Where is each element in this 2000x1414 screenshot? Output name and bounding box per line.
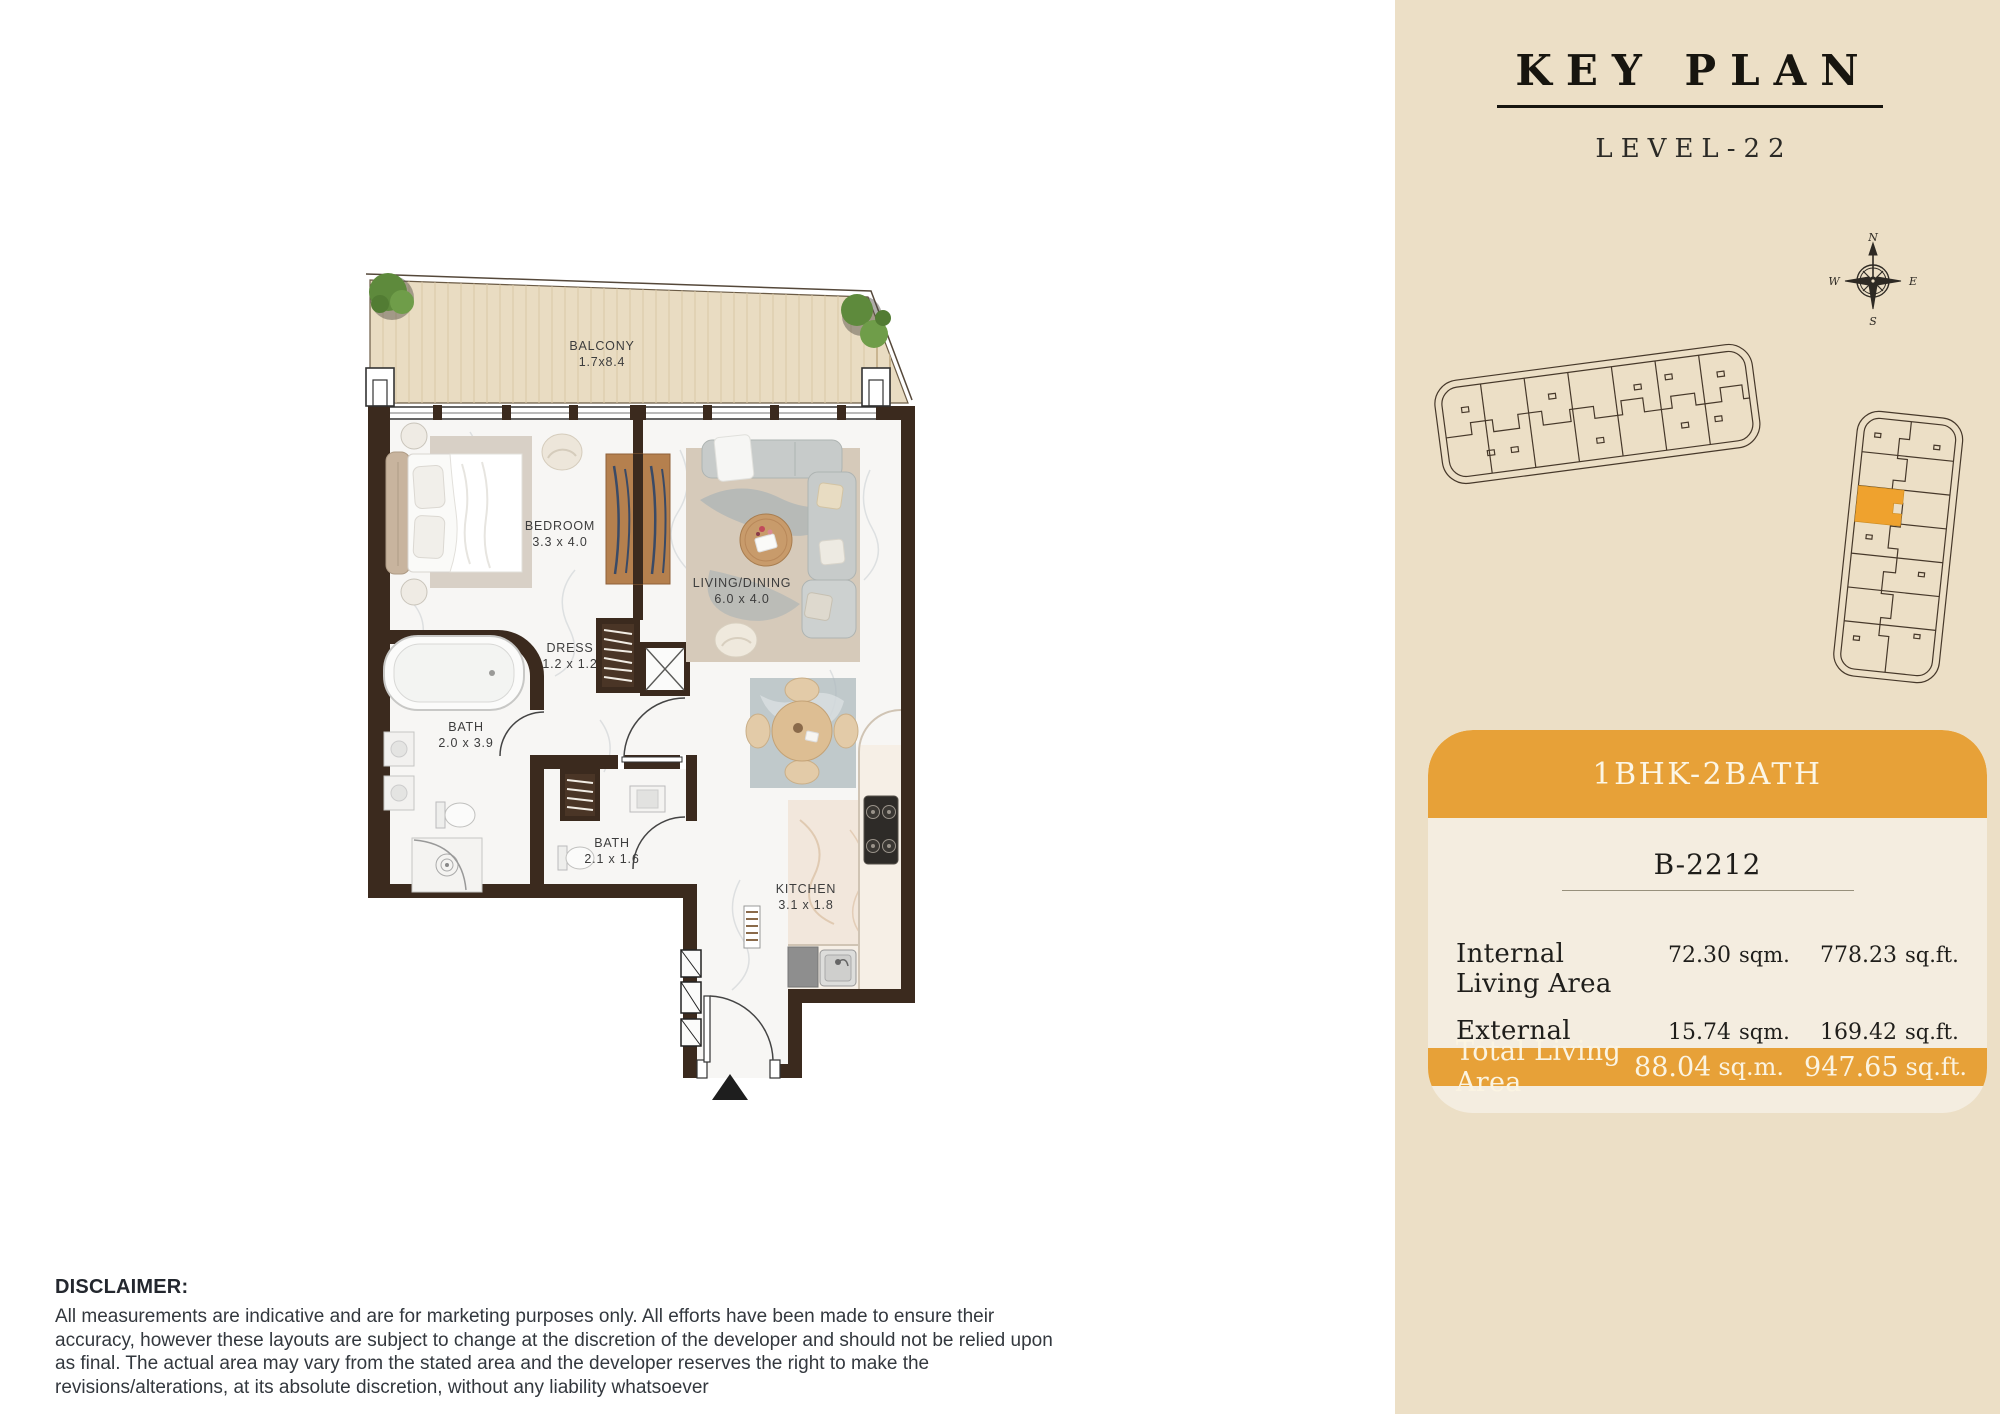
unit-type-label: 1BHK-2BATH bbox=[1593, 757, 1823, 792]
coffee-table bbox=[740, 514, 792, 566]
svg-text:6.0 x 4.0: 6.0 x 4.0 bbox=[714, 592, 769, 606]
shaft-box bbox=[643, 645, 687, 693]
keyplan-title: KEY PLAN bbox=[1395, 46, 1985, 108]
svg-text:1.2 x 1.2: 1.2 x 1.2 bbox=[542, 657, 597, 671]
area-sqft-unit: sq.ft. bbox=[1897, 943, 1961, 967]
wardrobe bbox=[606, 454, 670, 584]
dining-chair bbox=[746, 714, 770, 748]
toilet bbox=[436, 802, 475, 828]
room-label-living-dining: LIVING/DINING bbox=[693, 576, 792, 590]
area-sqm-unit: sqm. bbox=[1731, 1020, 1801, 1044]
keyplan-title-text: KEY PLAN bbox=[1497, 46, 1882, 108]
total-sqm-value: 88.04 bbox=[1634, 1052, 1711, 1083]
bathtub bbox=[384, 636, 524, 710]
compass-n-label: N bbox=[1867, 233, 1878, 244]
area-sqm-value: 72.30 bbox=[1645, 943, 1731, 968]
balcony-deck bbox=[366, 270, 912, 406]
compass-icon: N S W E bbox=[1825, 233, 1921, 329]
total-sqm-unit: sq.m. bbox=[1718, 1053, 1784, 1081]
unit-number: B-2212 bbox=[1428, 848, 1987, 881]
svg-text:1.7x8.4: 1.7x8.4 bbox=[579, 355, 626, 369]
disclaimer: DISCLAIMER: All measurements are indicat… bbox=[55, 1276, 1075, 1399]
svg-text:3.1 x 1.8: 3.1 x 1.8 bbox=[778, 898, 833, 912]
room-label-bath2: BATH bbox=[594, 836, 630, 850]
compass-w-label: W bbox=[1828, 275, 1841, 288]
svg-text:2.1 x 1.6: 2.1 x 1.6 bbox=[584, 852, 639, 866]
keyplan-header: KEY PLAN LEVEL-22 bbox=[1395, 0, 1985, 164]
side-table bbox=[401, 423, 427, 449]
area-sqft-value: 778.23 bbox=[1801, 943, 1897, 968]
room-label-balcony: BALCONY bbox=[569, 339, 634, 353]
area-row-label: Internal Living Area bbox=[1456, 939, 1645, 999]
dining-set bbox=[746, 678, 858, 788]
total-label: Total Living Area bbox=[1428, 1036, 1634, 1098]
shower bbox=[412, 838, 482, 892]
room-label-dress: DRESS bbox=[546, 641, 593, 655]
area-row-internal: Internal Living Area 72.30 sqm. 778.23 s… bbox=[1428, 939, 1987, 999]
area-sqft-unit: sq.ft. bbox=[1897, 1020, 1961, 1044]
svg-text:2.0 x 3.9: 2.0 x 3.9 bbox=[438, 736, 493, 750]
area-sqm-unit: sqm. bbox=[1731, 943, 1801, 967]
room-label-kitchen: KITCHEN bbox=[776, 882, 836, 896]
disclaimer-heading: DISCLAIMER: bbox=[55, 1276, 1075, 1299]
page: { "key_plan": { "title": "KEY PLAN", "le… bbox=[0, 0, 2000, 1414]
dining-chair bbox=[834, 714, 858, 748]
disclaimer-body: All measurements are indicative and are … bbox=[55, 1305, 1075, 1399]
bed bbox=[386, 452, 522, 574]
room-label-bedroom: BEDROOM bbox=[525, 519, 595, 533]
bedroom-armchair bbox=[542, 434, 582, 470]
living-armchair bbox=[715, 623, 757, 657]
dining-chair bbox=[785, 760, 819, 784]
keyplan-sidebar: KEY PLAN LEVEL-22 N S W E bbox=[1395, 0, 2000, 1414]
total-area-bar: Total Living Area 88.04 sq.m. 947.65 sq.… bbox=[1428, 1048, 1987, 1086]
laundry-closet bbox=[560, 769, 600, 821]
area-sqm-value: 15.74 bbox=[1645, 1020, 1731, 1045]
stove-icon bbox=[864, 796, 898, 864]
shaft-boxes bbox=[681, 950, 701, 1046]
bath2-side-wall bbox=[686, 769, 697, 821]
total-sqft-value: 947.65 bbox=[1804, 1052, 1898, 1083]
total-sqft-unit: sq.ft. bbox=[1906, 1053, 1967, 1081]
bath-wall bbox=[530, 755, 544, 884]
building-outline-1 bbox=[1423, 332, 1771, 490]
floor-plan: BALCONY 1.7x8.4 BEDROOM 3.3 x 4.0 LIVING… bbox=[350, 240, 950, 1110]
unit-type-header: 1BHK-2BATH bbox=[1428, 730, 1987, 818]
vent-grille bbox=[744, 906, 760, 948]
area-sqft-value: 169.42 bbox=[1801, 1020, 1897, 1045]
room-label-bath1: BATH bbox=[448, 720, 484, 734]
compass-e-label: E bbox=[1908, 275, 1917, 288]
level-label: LEVEL-22 bbox=[1395, 134, 1985, 164]
highlighted-unit bbox=[1855, 486, 1905, 527]
dress-closet bbox=[596, 618, 640, 693]
side-table bbox=[401, 579, 427, 605]
unit-card: 1BHK-2BATH B-2212 Internal Living Area 7… bbox=[1428, 730, 1987, 1113]
building-outline-2 bbox=[1823, 402, 1973, 697]
wc-sink bbox=[630, 786, 665, 812]
unit-number-underline bbox=[1562, 890, 1854, 891]
kitchen-counter-gray bbox=[788, 947, 818, 987]
compass-s-label: S bbox=[1869, 315, 1877, 328]
kitchen-sink bbox=[820, 950, 856, 986]
dining-chair bbox=[785, 678, 819, 702]
svg-text:3.3 x 4.0: 3.3 x 4.0 bbox=[532, 535, 587, 549]
